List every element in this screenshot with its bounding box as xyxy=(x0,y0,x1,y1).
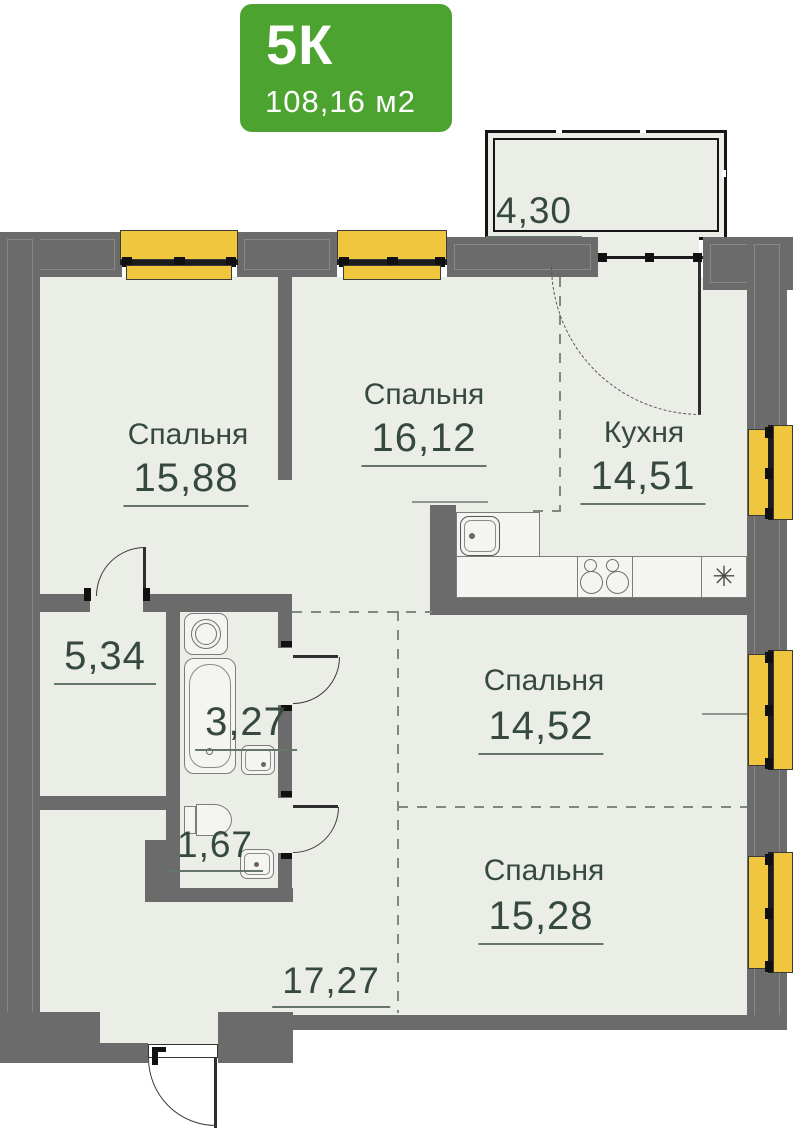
window xyxy=(748,852,793,973)
outer-wall-top-b xyxy=(237,232,337,277)
washing-machine-drum-inner xyxy=(195,623,217,645)
balcony-door-hardware xyxy=(598,253,607,262)
room-area-wardrobe: 5,34 xyxy=(54,634,156,685)
room-label-bedroom-4: Спальня xyxy=(484,854,605,888)
apartment-area-label: 108,16 м2 xyxy=(265,84,416,120)
door-jamb xyxy=(281,641,292,647)
stove-burner xyxy=(606,571,629,594)
window-outer xyxy=(120,230,238,260)
door-jamb xyxy=(84,588,91,601)
window-outer xyxy=(773,425,793,520)
room-label-bedroom-3: Спальня xyxy=(484,664,605,698)
door-opening-wc xyxy=(278,798,292,853)
wall-corridor-top xyxy=(40,594,292,612)
outer-wall-left xyxy=(0,232,40,1063)
window-outer xyxy=(773,852,793,973)
wall-shaft xyxy=(145,840,166,902)
balcony-door-hardware xyxy=(693,253,702,262)
room-area-wc: 1,67 xyxy=(167,824,263,872)
wall-bathroom-bottom xyxy=(166,888,293,902)
wall-wardrobe-bottom xyxy=(40,796,166,810)
balcony-door-hardware xyxy=(645,253,654,262)
apartment-type-label: 5К xyxy=(266,12,333,77)
room-area-bedroom-4: 15,28 xyxy=(478,894,603,945)
floorplan-canvas: 5К 108,16 м2 xyxy=(0,0,793,1130)
dashed-partition-bedrooms xyxy=(398,806,747,808)
window xyxy=(748,425,793,520)
kitchen-sink-tap xyxy=(469,533,475,539)
window-outer xyxy=(773,650,793,770)
window xyxy=(120,228,238,282)
stove-burner xyxy=(580,571,603,594)
door-jamb xyxy=(281,853,292,859)
glazing-gap xyxy=(722,170,726,177)
glazing-gap xyxy=(640,129,646,133)
bathroom-sink-inner xyxy=(245,749,271,771)
room-area-kitchen: 14,51 xyxy=(580,454,705,505)
door-jamb xyxy=(143,588,150,601)
window-outer xyxy=(337,230,447,260)
bathroom-sink-drain xyxy=(261,762,266,767)
outer-wall-bottom-c xyxy=(218,1012,293,1063)
room-area-balcony: 4,30 xyxy=(486,190,582,238)
window xyxy=(748,650,793,770)
window-sill xyxy=(126,265,232,280)
floor-edge-line xyxy=(412,501,488,503)
door-opening-bathroom xyxy=(278,648,292,705)
dashed-partition-corridor xyxy=(292,611,432,613)
floor-entry xyxy=(100,1012,218,1046)
room-area-bathroom: 3,27 xyxy=(195,700,297,751)
room-area-bedroom-1: 15,88 xyxy=(123,456,248,507)
room-label-kitchen: Кухня xyxy=(604,416,684,450)
room-label-bedroom-1: Спальня xyxy=(128,418,249,452)
room-label-bedroom-2: Спальня xyxy=(364,378,485,412)
wall-kitchen-bottom xyxy=(430,598,747,615)
dashed-partition-hall xyxy=(397,611,399,1013)
outer-wall-bottom-b xyxy=(0,1012,100,1043)
room-area-bedroom-3: 14,52 xyxy=(478,704,603,755)
wall-bedroom-divider xyxy=(278,277,292,480)
apartment-badge: 5К 108,16 м2 xyxy=(240,4,452,132)
room-area-bedroom-2: 16,12 xyxy=(361,416,486,467)
glazing-gap xyxy=(556,129,562,133)
room-area-hallway: 17,27 xyxy=(272,960,390,1008)
window-sill xyxy=(343,265,441,280)
outer-wall-bottom-d xyxy=(293,1015,787,1030)
appliance-icon: ✳ xyxy=(701,556,747,598)
door-opening-wardrobe xyxy=(90,594,143,612)
door-jamb xyxy=(281,791,292,797)
outer-wall-bottom-a xyxy=(0,1043,148,1063)
window xyxy=(337,228,447,282)
floor-edge-line xyxy=(702,713,747,715)
